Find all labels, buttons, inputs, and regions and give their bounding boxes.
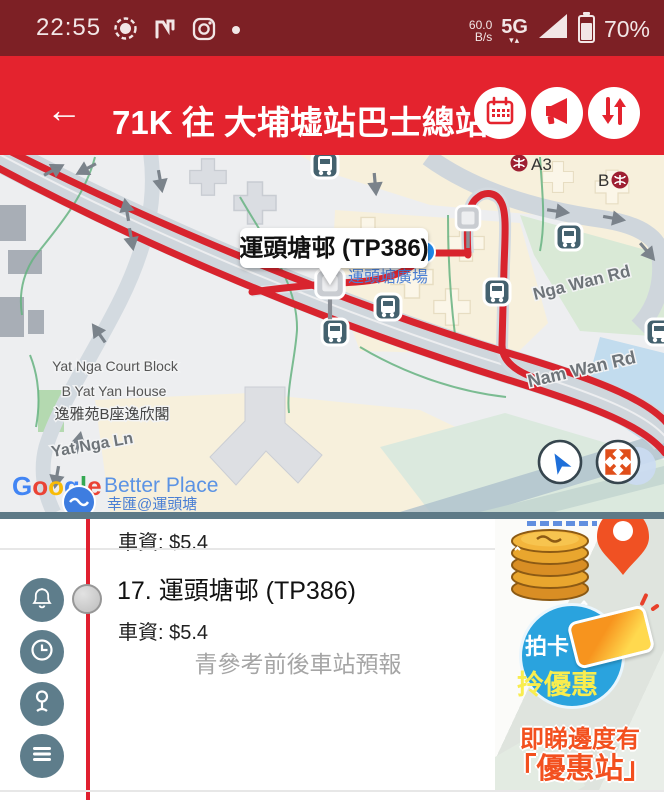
bus-stop-icon[interactable]: [484, 279, 510, 305]
bus-stop-icon[interactable]: [646, 319, 664, 345]
bottom-divider: [0, 790, 664, 792]
instagram-icon: [191, 16, 217, 47]
clock-icon: [29, 637, 55, 668]
bus-stop-icon[interactable]: [375, 294, 401, 320]
nearby-stops-button[interactable]: [20, 682, 64, 726]
stop-timeline-dot: [72, 584, 102, 614]
plaza-label: 運頭塘廣場: [348, 268, 428, 286]
status-bar: 22:55 60.0B/s 5G▾▴: [0, 0, 664, 56]
n-app-icon: [153, 17, 177, 46]
label-yat-nga-court: Yat Nga Court Block: [52, 358, 179, 374]
row-divider: [0, 548, 495, 550]
timetable-rail-button[interactable]: [20, 630, 64, 674]
ad-line2: 「優惠站」: [497, 745, 663, 787]
megaphone-icon: [541, 95, 573, 132]
mtr-exit-a3: A3: [511, 155, 552, 174]
calendar-icon: [484, 95, 516, 132]
stop-info-window-label: 運頭塘邨 (TP386): [239, 234, 428, 262]
ad-tap-card-text: 拍卡: [525, 629, 569, 661]
eta-notice: 青參考前後車站預報: [100, 645, 496, 679]
battery-percent: 70%: [604, 16, 650, 43]
timetable-button[interactable]: [474, 87, 526, 139]
signal-strength-icon: [537, 12, 569, 45]
label-place-cn: 幸匯@運頭塘: [107, 496, 197, 512]
svg-text:B: B: [598, 171, 609, 190]
bus-stop-icon[interactable]: [556, 224, 582, 250]
swap-arrows-icon: [598, 95, 630, 132]
label-yat-nga-cn: 逸雅苑B座逸欣閣: [54, 406, 169, 423]
location-pin-icon: [597, 519, 649, 575]
notification-dot: [231, 22, 241, 40]
notification-icons: [112, 15, 241, 47]
stop-list-sheet: 車資: $5.4 17. 運頭塘邨 (TP386) 車資: $5.4 青參考前後…: [0, 512, 664, 800]
bus-stop-sign-icon: [29, 689, 55, 720]
coins-icon: [512, 530, 588, 605]
bus-stop-icon[interactable]: [322, 319, 348, 345]
route-timeline: [86, 519, 90, 800]
reverse-direction-button[interactable]: [588, 87, 640, 139]
back-button[interactable]: ←: [46, 92, 82, 128]
place-pin-icon: [63, 486, 95, 512]
hamburger-menu-icon: [30, 742, 54, 771]
bus-stop-icon[interactable]: [312, 155, 338, 178]
label-better-place: Better Place: [104, 474, 218, 497]
announcement-button[interactable]: [531, 87, 583, 139]
sheet-drag-handle[interactable]: [0, 512, 664, 519]
prev-stop-fare: 車資: $5.4: [118, 526, 208, 555]
stop-list-item-title[interactable]: 17. 運頭塘邨 (TP386): [117, 571, 356, 607]
label-yat-yan-house: B Yat Yan House: [62, 383, 167, 399]
ad-get-discount-text: 拎優惠: [517, 663, 598, 702]
clock-time: 22:55: [36, 14, 101, 42]
promo-banner[interactable]: 拍卡 拎優惠 即睇邊度有 「優惠站」: [495, 519, 664, 790]
status-indicators: 60.0B/s 5G▾▴ 70%: [469, 8, 650, 48]
fullscreen-button[interactable]: [597, 441, 639, 483]
bell-icon: [29, 585, 55, 616]
app-header: ← 71K 往 大埔墟站巴士總站...: [0, 56, 664, 155]
signal-app-icon: [112, 15, 139, 47]
svg-text:A3: A3: [531, 155, 552, 174]
menu-button[interactable]: [20, 734, 64, 778]
network-type: 5G▾▴: [501, 17, 528, 44]
battery-icon: [578, 15, 595, 43]
app-screen: 22:55 60.0B/s 5G▾▴: [0, 0, 664, 800]
data-rate: 60.0B/s: [469, 19, 492, 43]
route-title: 71K 往 大埔墟站巴士總站...: [112, 96, 515, 144]
stop-fare: 車資: $5.4: [118, 616, 208, 645]
my-location-button[interactable]: [539, 441, 581, 483]
alarm-button[interactable]: [20, 578, 64, 622]
route-map[interactable]: 運頭塘廣場 運頭塘邨 (TP386) A3 B Nga Wan Rd: [0, 155, 664, 512]
